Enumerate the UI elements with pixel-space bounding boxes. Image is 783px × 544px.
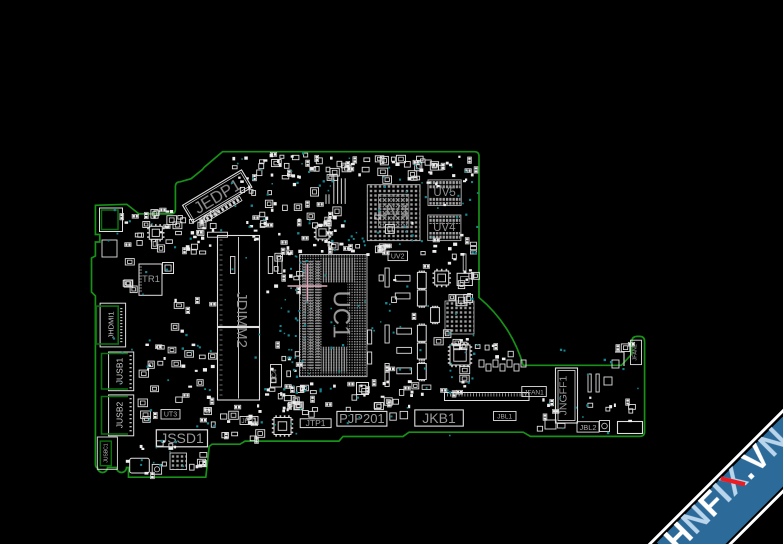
svg-text:JNGFF1: JNGFF1 (558, 376, 570, 416)
svg-text:JFAN2: JFAN2 (632, 344, 638, 361)
svg-text:JUSB1: JUSB1 (115, 358, 125, 385)
svg-text:UC1: UC1 (328, 290, 355, 338)
svg-text:UT3: UT3 (164, 412, 177, 419)
svg-text:UV1: UV1 (378, 203, 410, 221)
svg-text:UV2: UV2 (391, 253, 405, 260)
svg-text:JDIMM2: JDIMM2 (233, 292, 250, 348)
svg-text:JTP1: JTP1 (306, 418, 326, 428)
svg-text:UV5: UV5 (433, 187, 455, 199)
svg-text:JUSBC1: JUSBC1 (104, 443, 110, 462)
svg-text:JBL2: JBL2 (579, 423, 596, 432)
svg-text:JKB1: JKB1 (422, 410, 456, 426)
svg-text:UV4: UV4 (433, 222, 456, 234)
svg-text:JUSB2: JUSB2 (115, 402, 125, 429)
svg-text:PJP201: PJP201 (339, 411, 385, 426)
svg-text:JBL1: JBL1 (497, 414, 512, 421)
svg-text:TR1: TR1 (142, 274, 160, 285)
svg-text:JHDMI1: JHDMI1 (107, 311, 116, 338)
svg-text:JSSD1: JSSD1 (160, 430, 204, 446)
svg-text:JFAN1: JFAN1 (524, 389, 544, 396)
svg-text:UC4: UC4 (271, 369, 278, 383)
